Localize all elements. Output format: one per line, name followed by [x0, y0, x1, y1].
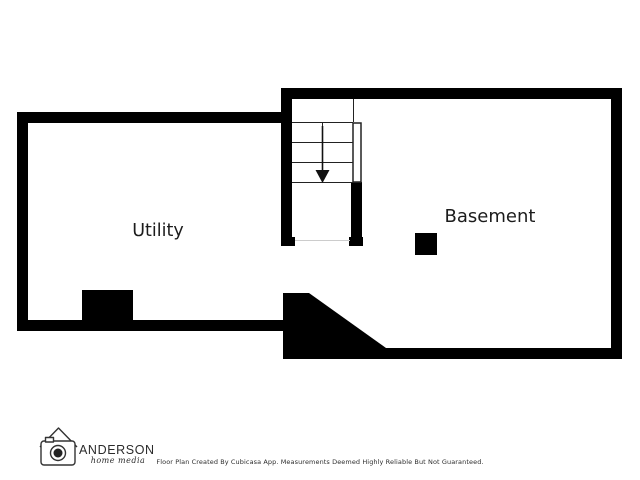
wall-basement-bottom: [283, 348, 622, 359]
wall-notch: [82, 290, 133, 320]
wall-utility-left: [17, 112, 28, 331]
stair-railing: [353, 123, 361, 182]
brand-company-name: ANDERSON: [79, 443, 159, 457]
wall-stair-left-jamb: [281, 237, 295, 246]
floor-plan-canvas: [0, 0, 640, 480]
room-label-basement: Basement: [429, 206, 551, 227]
wall-stair-left: [281, 88, 292, 237]
room-label-utility: Utility: [108, 221, 208, 241]
stair-down-arrow-icon: [316, 126, 330, 183]
footer-disclaimer: Floor Plan Created By Cubicasa App. Meas…: [0, 458, 640, 466]
wall-stair-right: [351, 182, 362, 237]
wall-utility-top: [17, 112, 283, 123]
floor-plan-page: Utility Basement ANDERSON home media Flo…: [0, 0, 640, 480]
stairs: [292, 99, 361, 241]
wall-stair-right-jamb: [349, 237, 363, 246]
wall-diagonal: [283, 293, 386, 348]
wall-basement-right: [611, 88, 622, 359]
wall-basement-top: [281, 88, 622, 99]
support-post: [415, 233, 437, 255]
wall-utility-bottom: [17, 320, 285, 331]
